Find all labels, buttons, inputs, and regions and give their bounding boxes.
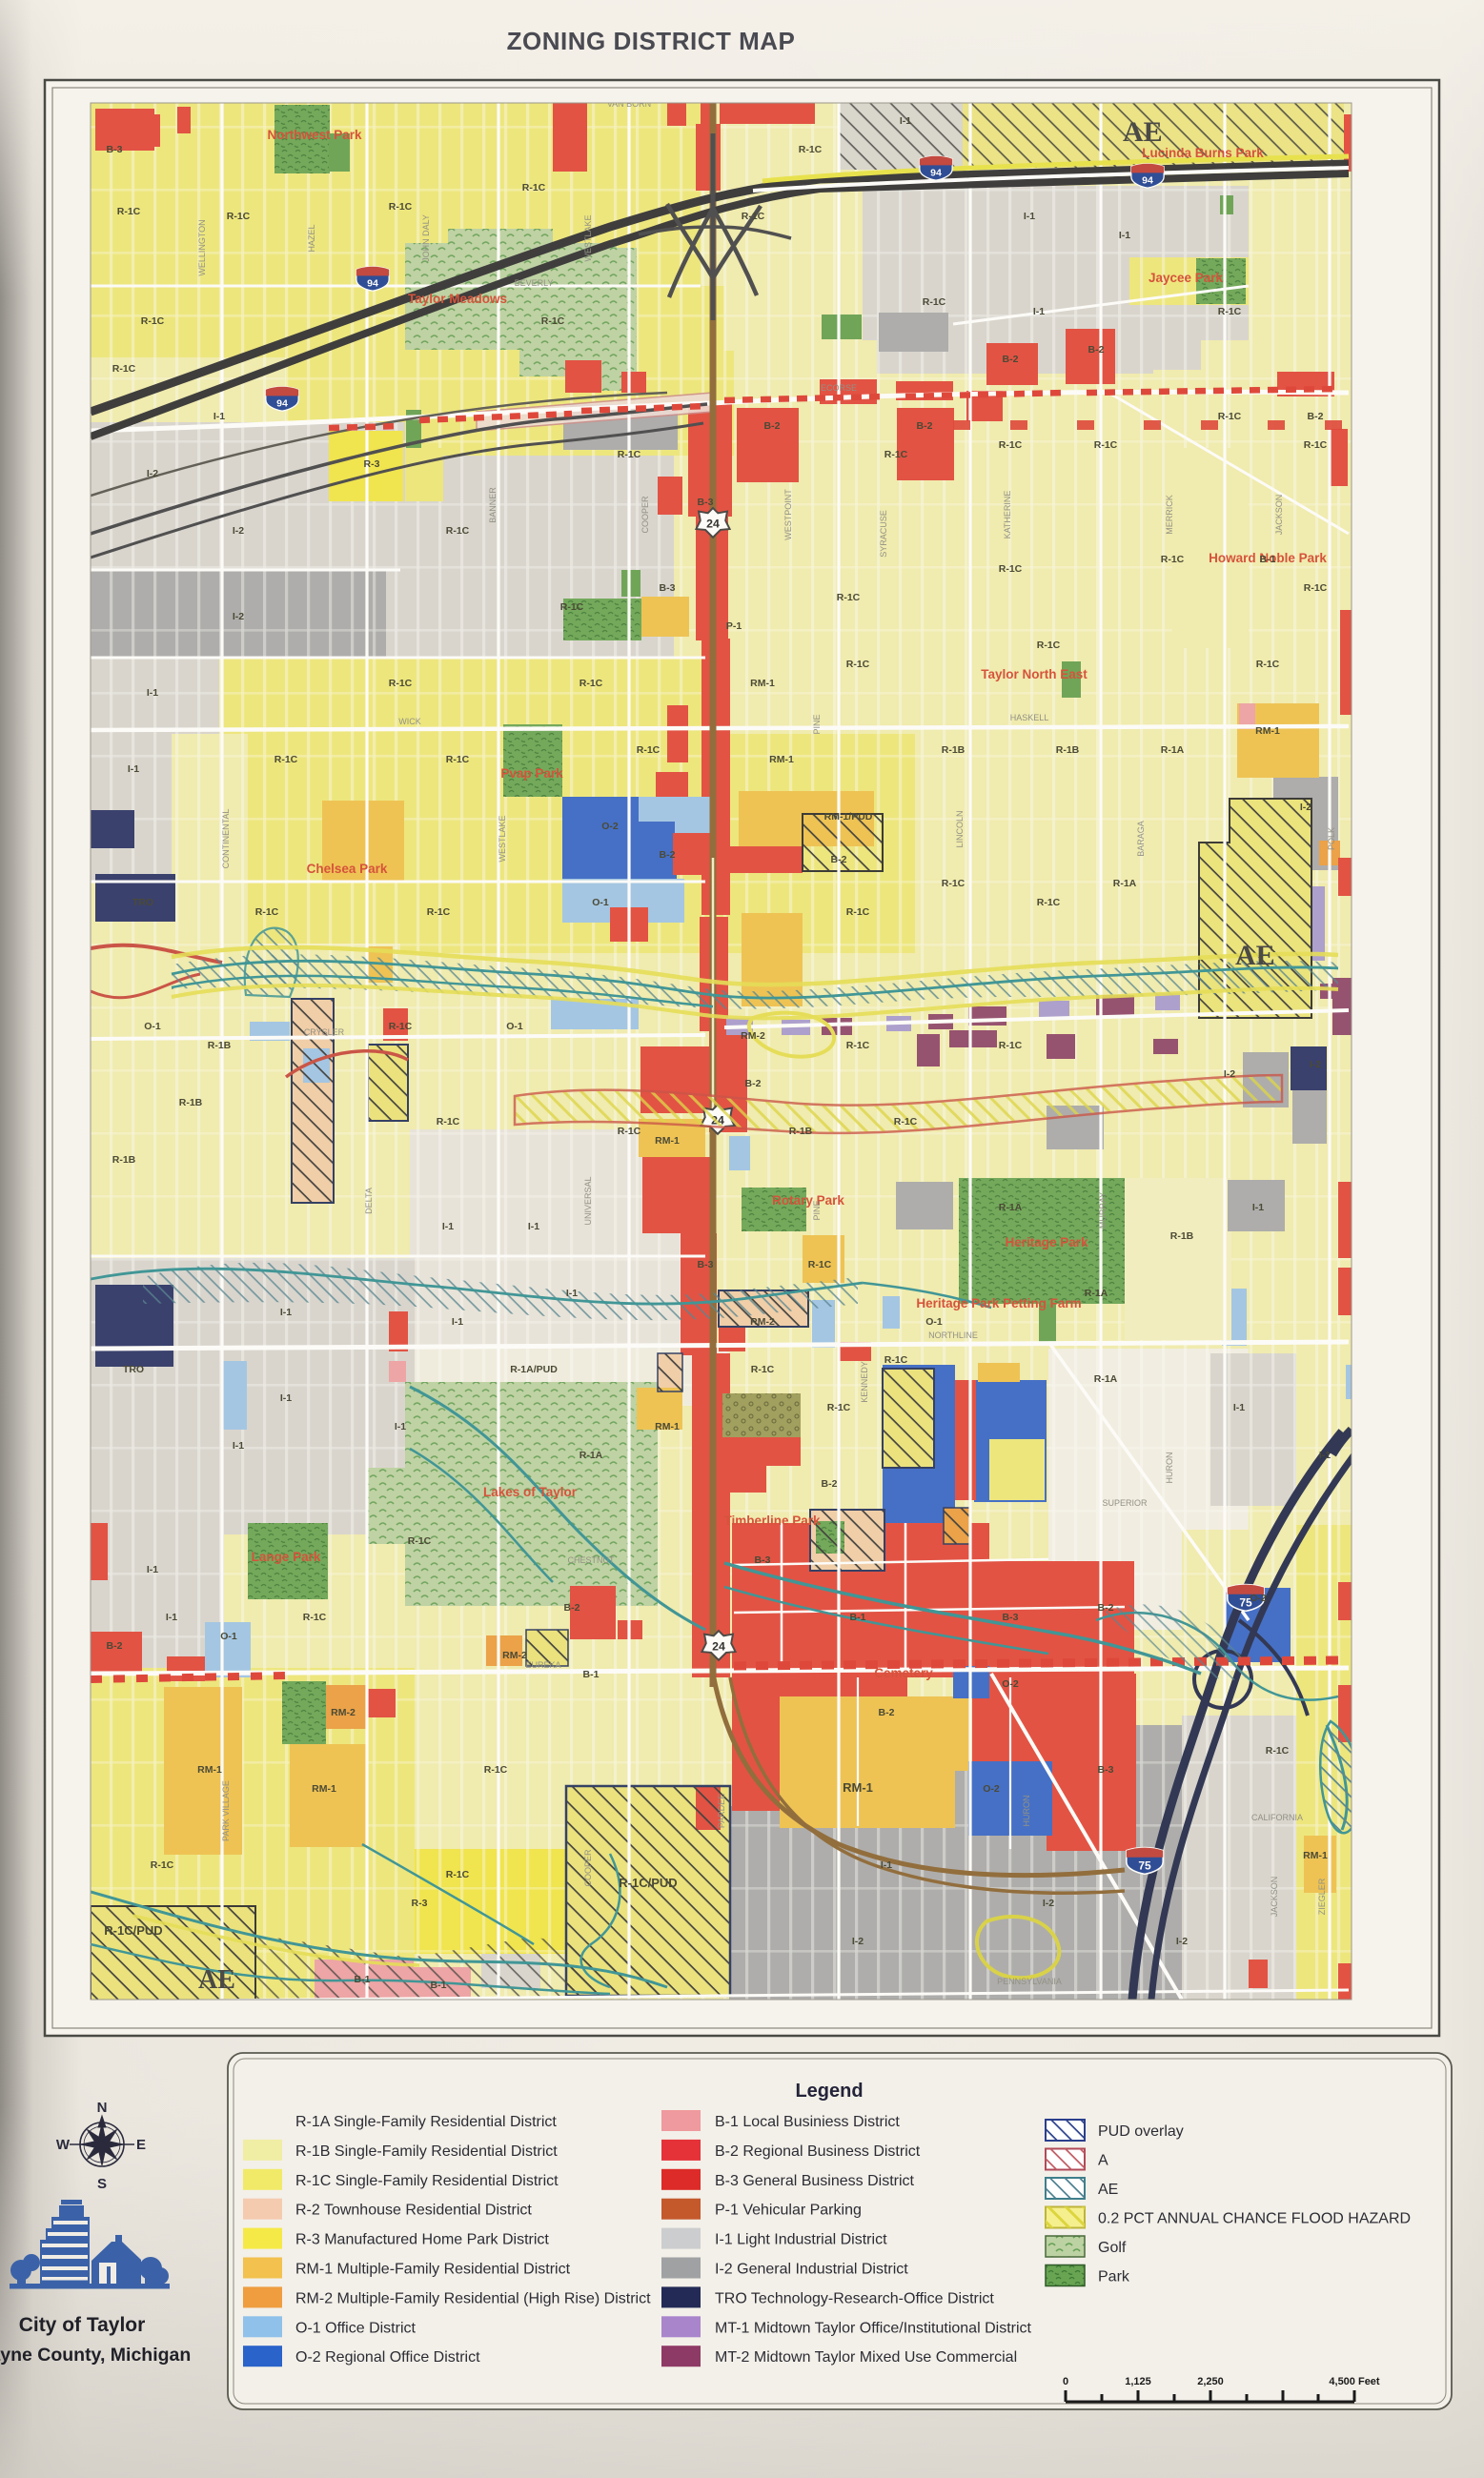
svg-text:TRO Technology-Research-Office: TRO Technology-Research-Office District <box>715 2290 994 2306</box>
svg-text:RM-1 Multiple-Family Residenti: RM-1 Multiple-Family Residential Distric… <box>295 2262 571 2278</box>
svg-text:I-1 Light Industrial District: I-1 Light Industrial District <box>715 2232 887 2248</box>
svg-text:1,125: 1,125 <box>1125 2376 1151 2387</box>
svg-text:2,250: 2,250 <box>1197 2376 1224 2387</box>
svg-text:A: A <box>1098 2153 1108 2169</box>
svg-text:N: N <box>97 2100 108 2116</box>
svg-text:R-1B Single-Family Residential: R-1B Single-Family Residential District <box>295 2143 558 2160</box>
svg-text:B-3 General Business District: B-3 General Business District <box>715 2173 915 2189</box>
svg-text:Legend: Legend <box>795 2081 863 2102</box>
svg-text:Park: Park <box>1098 2269 1130 2285</box>
svg-text:S: S <box>97 2176 107 2192</box>
svg-text:PUD overlay: PUD overlay <box>1098 2123 1184 2140</box>
svg-text:ZONING DISTRICT MAP: ZONING DISTRICT MAP <box>507 27 796 55</box>
svg-text:R-2 Townhouse Residential Dist: R-2 Townhouse Residential District <box>295 2203 532 2219</box>
svg-text:O-1 Office District: O-1 Office District <box>295 2320 417 2336</box>
svg-text:B-2 Regional Business District: B-2 Regional Business District <box>715 2143 921 2160</box>
svg-text:I-2 General Industrial Distric: I-2 General Industrial District <box>715 2262 908 2278</box>
svg-text:4,500 Feet: 4,500 Feet <box>1329 2376 1380 2387</box>
svg-text:R-1C Single-Family Residential: R-1C Single-Family Residential District <box>295 2173 559 2189</box>
svg-text:0: 0 <box>1063 2376 1068 2387</box>
svg-text:MT-2 Midtown Taylor Mixed Use: MT-2 Midtown Taylor Mixed Use Commercial <box>715 2349 1017 2366</box>
svg-text:0.2 PCT ANNUAL CHANCE FLOOD HA: 0.2 PCT ANNUAL CHANCE FLOOD HAZARD <box>1098 2211 1411 2227</box>
svg-text:W: W <box>56 2137 71 2153</box>
svg-text:R-1A Single-Family Residential: R-1A Single-Family Residential District <box>295 2114 557 2130</box>
svg-text:E: E <box>136 2137 146 2153</box>
svg-text:Golf: Golf <box>1098 2240 1127 2256</box>
svg-text:R-3 Manufactured Home Park Dis: R-3 Manufactured Home Park District <box>295 2232 549 2248</box>
svg-text:AE: AE <box>1098 2182 1118 2198</box>
svg-text:Wayne County, Michigan: Wayne County, Michigan <box>0 2345 191 2366</box>
svg-text:RM-2 Multiple-Family Residenti: RM-2 Multiple-Family Residential (High R… <box>295 2290 651 2306</box>
svg-text:MT-1 Midtown Taylor Office/Ins: MT-1 Midtown Taylor Office/Institutional… <box>715 2320 1032 2336</box>
svg-text:B-1 Local Businiess District: B-1 Local Businiess District <box>715 2114 900 2130</box>
svg-text:P-1 Vehicular Parking: P-1 Vehicular Parking <box>715 2203 862 2219</box>
svg-text:City of Taylor: City of Taylor <box>19 2314 146 2336</box>
svg-text:O-2 Regional Office District: O-2 Regional Office District <box>295 2349 480 2366</box>
